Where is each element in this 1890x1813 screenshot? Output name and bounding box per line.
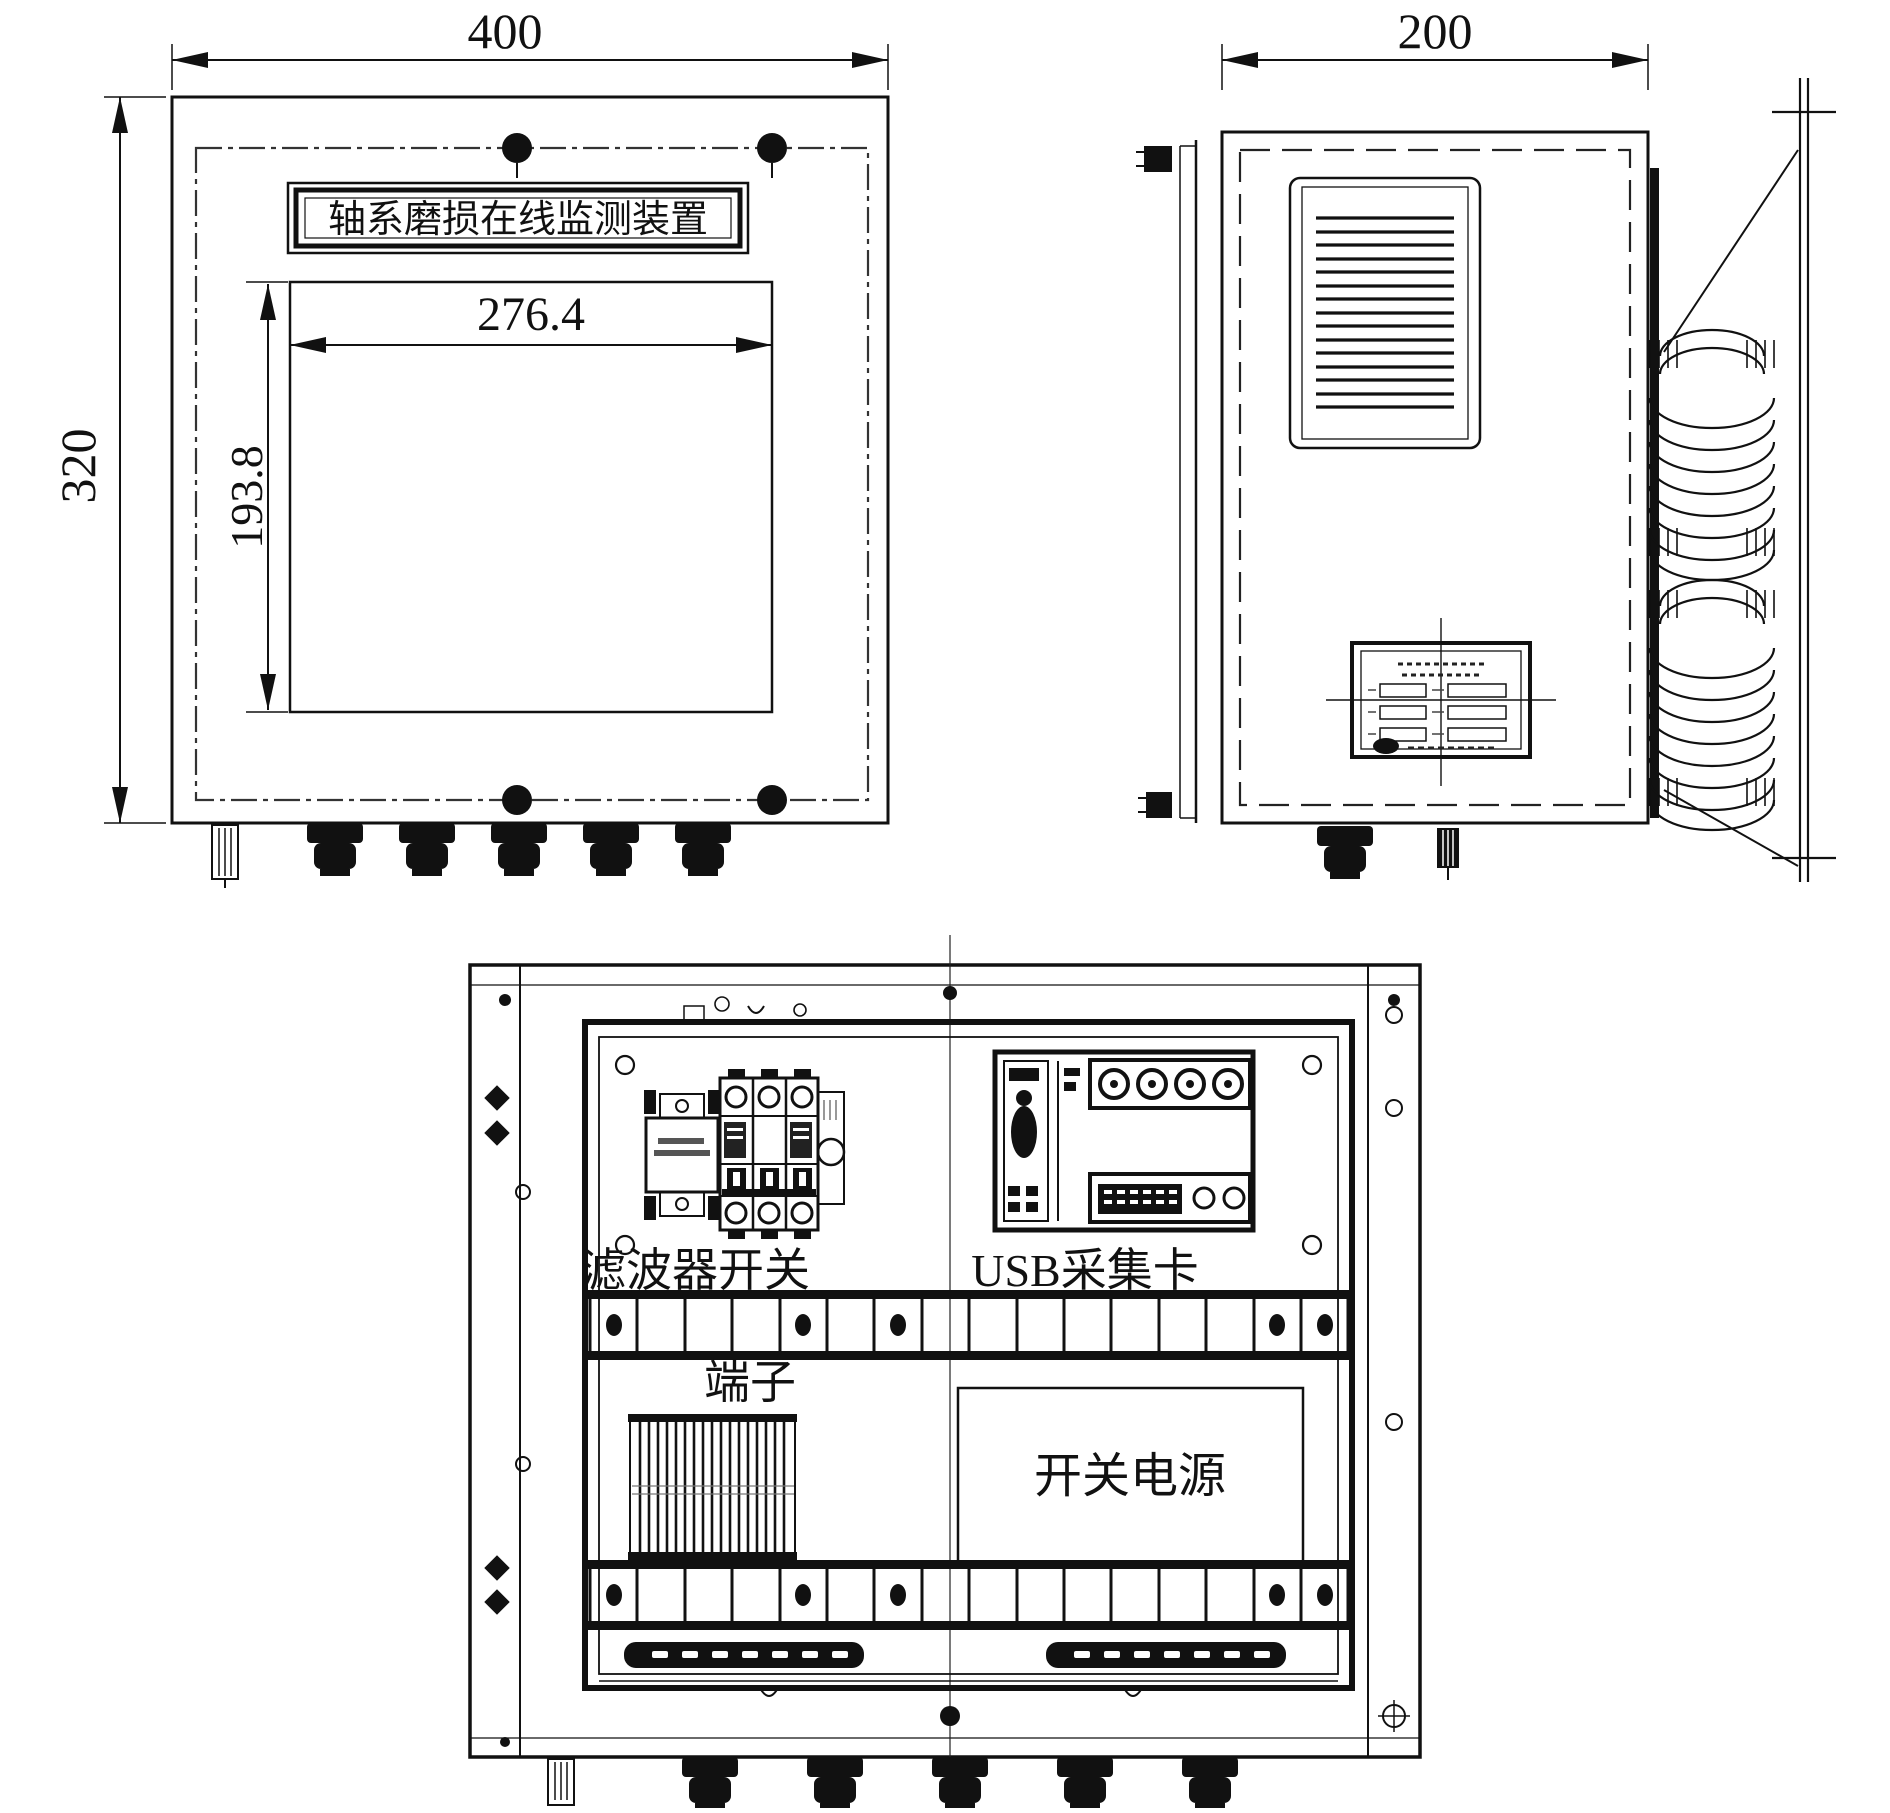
dim-height-320: 320 xyxy=(50,97,166,823)
internal-view: 滤波器开关 USB采集卡 端子 开关电源 xyxy=(470,935,1420,1808)
dim-label-400: 400 xyxy=(468,3,543,59)
cable-glands-bottom xyxy=(548,1757,1238,1808)
label-power-supply: 开关电源 xyxy=(1034,1450,1226,1503)
engineering-drawing-page: 400 320 轴系磨损在线监测装置 xyxy=(0,0,1890,1808)
dim-width-400: 400 xyxy=(172,3,888,90)
wire-duct-right xyxy=(1046,1642,1286,1668)
line-filter xyxy=(644,1090,720,1220)
rating-plate xyxy=(1326,618,1556,786)
device-title: 轴系磨损在线监测装置 xyxy=(328,199,708,241)
cable-glands-side xyxy=(1317,826,1459,880)
terminal-strip-row-top xyxy=(588,1290,1350,1360)
dim-label-200: 200 xyxy=(1398,3,1473,59)
dim-screen-width: 276.4 xyxy=(290,288,772,353)
door-latch-bottom xyxy=(1146,792,1172,818)
mounting-panel xyxy=(470,965,1420,1757)
dim-label-193: 193.8 xyxy=(221,445,272,549)
door-edge-panel xyxy=(1136,140,1196,823)
usb-daq-card xyxy=(995,1052,1253,1230)
cable-coil-top xyxy=(1650,330,1774,580)
dim-depth-200: 200 xyxy=(1222,3,1648,90)
panel-hardware-flanges xyxy=(484,1007,1410,1747)
enclosure-drawing: 400 320 轴系磨损在线监测装置 xyxy=(0,0,1890,1808)
mounting-bracket xyxy=(1664,78,1836,882)
circuit-breaker xyxy=(720,1069,844,1239)
label-filter-switch: 滤波器开关 xyxy=(580,1245,810,1296)
screen-cutout xyxy=(290,282,772,712)
terminal-strip-row-bottom xyxy=(588,1560,1350,1630)
label-usb-card: USB采集卡 xyxy=(971,1245,1198,1296)
dim-label-276: 276.4 xyxy=(477,288,585,341)
power-supply-box: 开关电源 xyxy=(958,1388,1303,1563)
front-view: 400 320 轴系磨损在线监测装置 xyxy=(50,3,888,888)
side-door-dashed xyxy=(1240,150,1630,805)
dim-screen-height: 193.8 xyxy=(221,282,288,712)
label-terminals: 端子 xyxy=(704,1357,796,1408)
wire-duct-left xyxy=(624,1642,864,1668)
cable-glands-front xyxy=(212,823,731,888)
vent-louver xyxy=(1290,178,1480,448)
terminal-block xyxy=(628,1414,797,1560)
side-enclosure-outline xyxy=(1222,132,1648,823)
door-latch-top xyxy=(1144,146,1172,172)
dim-label-320: 320 xyxy=(50,429,106,504)
side-view: 200 xyxy=(1136,3,1836,882)
nameplate-front: 轴系磨损在线监测装置 xyxy=(288,183,748,253)
